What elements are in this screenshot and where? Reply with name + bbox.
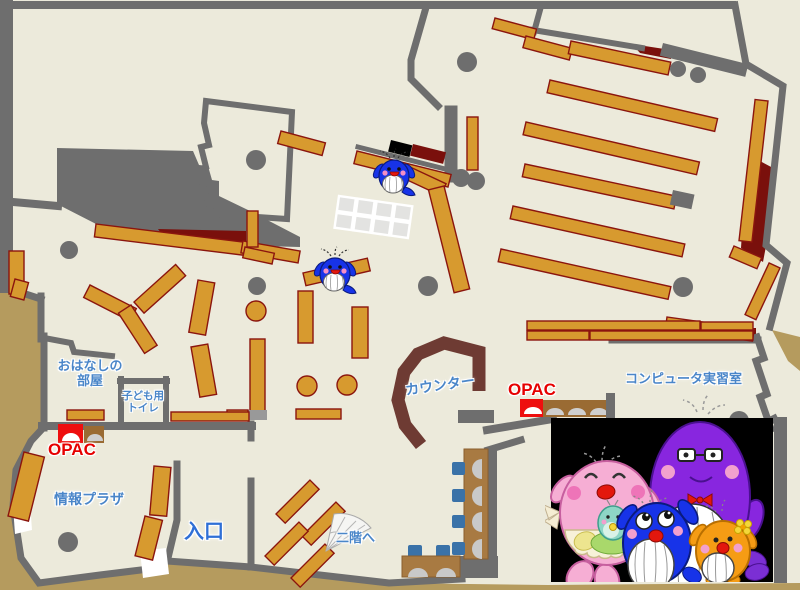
- label-entrance: 入口: [184, 521, 224, 544]
- chair: [452, 542, 465, 555]
- pillar-icon: [248, 277, 266, 295]
- mascot-family-photo: [544, 395, 773, 590]
- round-table-icon: [246, 301, 266, 321]
- pillar-icon: [673, 277, 693, 297]
- pillar-icon: [467, 172, 485, 190]
- pillar-icon: [60, 241, 78, 259]
- label-computer-room: コンピュータ実習室: [625, 372, 742, 387]
- label-to-second-floor: 二階へ: [336, 531, 375, 546]
- label-kids-toilet: 子ども用 トイレ: [114, 390, 172, 414]
- chair: [452, 462, 465, 475]
- chair: [452, 515, 465, 528]
- round-table-icon: [337, 375, 357, 395]
- label-info-plaza: 情報プラザ: [54, 491, 124, 507]
- pillar-icon: [690, 67, 706, 83]
- label-opac-right: OPAC: [508, 380, 556, 400]
- pillar-icon: [452, 169, 470, 187]
- pillar-icon: [58, 532, 78, 552]
- chair: [436, 545, 450, 557]
- label-storytelling-room: おはなしの 部屋: [46, 359, 134, 389]
- chair: [408, 545, 422, 557]
- library-floor-map: おはなしの 部屋 子ども用 トイレ OPAC 情報プラザ 入口 二階へ カウンタ…: [0, 0, 800, 590]
- round-table-icon: [297, 376, 317, 396]
- pillar-icon: [418, 276, 438, 296]
- pillar-icon: [670, 61, 686, 77]
- chair: [452, 489, 465, 502]
- label-opac-left: OPAC: [48, 440, 96, 460]
- pillar-icon: [457, 52, 477, 72]
- pillar-icon: [246, 150, 266, 170]
